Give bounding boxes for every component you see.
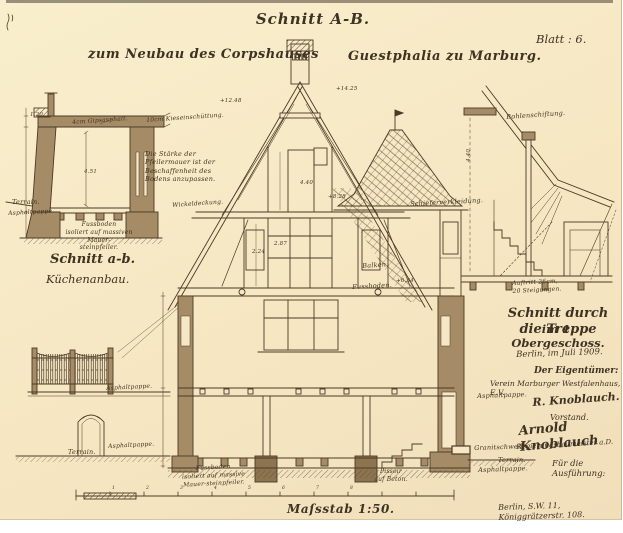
scale-tick-label: 1	[112, 486, 115, 492]
owner-heading: Der Eigentümer:	[534, 366, 618, 377]
dim-label: +6.34	[396, 278, 414, 285]
subtitle-right: Guestphalia zu Marburg.	[348, 49, 541, 65]
dim-label: 2.87	[274, 241, 287, 248]
subtitle-left: zum Neubau des Corpshauses	[88, 47, 319, 63]
corner-stamp	[7, 14, 13, 30]
dim-label: 2.24	[252, 249, 265, 256]
scale-tick-label: 6	[282, 486, 285, 492]
dim-label: 1.20	[30, 112, 43, 119]
sheet-number: Blatt : 6.	[536, 33, 586, 47]
scale-bar	[76, 490, 454, 500]
scale-tick-label: 3	[180, 486, 183, 492]
scale-tick-label: 7	[316, 486, 319, 492]
label-terrain-annex: Terrain.	[12, 198, 40, 206]
execution-heading: Für die Ausführung:	[552, 459, 623, 479]
scale-tick-label: 4	[214, 486, 217, 492]
label-terrain-fence: Terrain.	[68, 448, 96, 456]
main-section-drawing	[118, 40, 535, 482]
note-pfeilermauer: Die Stärke der Pfeilermauer ist der Besc…	[145, 150, 215, 184]
note-fussboden-annex: Fussboden isoliert auf massiven Mauer- s…	[54, 221, 144, 252]
label-terrain-right: Terrain.	[498, 456, 526, 464]
dim-label: 4.40	[300, 180, 313, 187]
dim-label: +12.48	[220, 98, 242, 105]
dim-label: 4.40	[466, 149, 473, 162]
label-auftritt: Auftritt 26cm, 20 Steigungen.	[512, 277, 562, 295]
label-asphaltpappe-right: Asphaltpappe.	[477, 390, 527, 400]
kitchen-subcaption: Küchenanbau.	[46, 273, 129, 287]
scale-label: Maſsstab 1:50.	[287, 502, 395, 516]
sheet-title: Schnitt A-B.	[238, 10, 388, 28]
scale-tick-label: 2	[146, 486, 149, 492]
scale-tick-label: 8	[350, 486, 353, 492]
dim-label: +8.28	[328, 194, 346, 201]
dim-label: 4.51	[84, 169, 97, 176]
scale-tick-label: 5	[248, 486, 251, 492]
dim-label: +14.25	[336, 86, 358, 93]
label-asphaltpappe-right2: Asphaltpappe.	[478, 464, 528, 474]
scanned-drawing-sheet: { "header": { "title": "Schnitt A-B.", "…	[0, 0, 623, 533]
label-pissoir: Pissoir auf Beton.	[372, 468, 410, 484]
kitchen-caption: Schnitt a-b.	[50, 252, 135, 268]
